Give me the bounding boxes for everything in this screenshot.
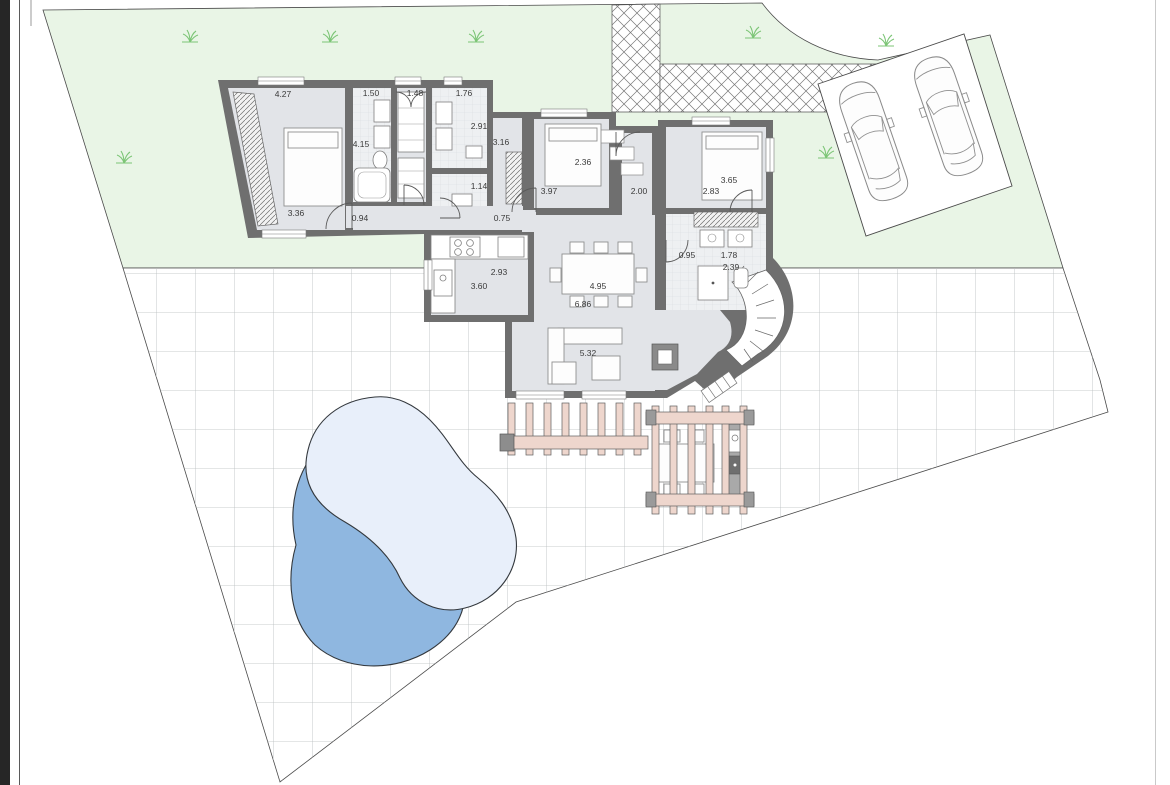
dimension-label: 1.48 <box>407 88 424 98</box>
hall-opening <box>522 210 536 232</box>
fireplace-icon <box>652 344 678 370</box>
bed-icon <box>545 124 601 186</box>
window-icon <box>692 117 730 125</box>
dimension-label: 4.27 <box>275 89 292 99</box>
dimension-label: 3.36 <box>288 208 305 218</box>
fridge-icon <box>498 237 524 257</box>
bed-icon <box>284 128 342 206</box>
dimension-label: 2.83 <box>703 186 720 196</box>
site-plan-drawing: 4.271.501.481.764.152.913.162.363.972.00… <box>0 0 1170 785</box>
dimension-label: 0.94 <box>352 213 369 223</box>
dimension-label: 2.91 <box>471 121 488 131</box>
dimension-label: 3.65 <box>721 175 738 185</box>
window-icon <box>766 138 774 172</box>
stove-icon <box>450 237 480 257</box>
window-icon <box>258 77 304 85</box>
dimension-label: 2.00 <box>631 186 648 196</box>
window-icon <box>541 109 587 117</box>
window-icon <box>516 391 564 399</box>
wardrobe <box>694 212 758 227</box>
dimension-label: 1.78 <box>721 250 738 260</box>
window-icon <box>582 391 626 399</box>
wardrobe <box>506 152 522 204</box>
dimension-label: 1.76 <box>456 88 473 98</box>
dimension-label: 1.14 <box>471 181 488 191</box>
dimension-label: 2.36 <box>575 157 592 167</box>
window-icon <box>424 260 432 290</box>
dimension-label: 0.75 <box>494 213 511 223</box>
dimension-label: 5.32 <box>580 348 597 358</box>
dimension-label: 3.97 <box>541 186 558 196</box>
sink-icon <box>434 270 452 296</box>
dimension-label: 1.50 <box>363 88 380 98</box>
pergola-right <box>646 406 754 514</box>
dimension-label: 6.86 <box>575 299 592 309</box>
plan-viewer-page: 4.271.501.481.764.152.913.162.363.972.00… <box>0 0 1170 785</box>
window-icon <box>395 77 421 85</box>
dimension-label: 2.93 <box>491 267 508 277</box>
closet-shelves <box>398 92 424 198</box>
dimension-label: 2.39 <box>723 262 740 272</box>
viewer-left-bar <box>0 0 10 785</box>
dimension-label: 3.16 <box>493 137 510 147</box>
dimension-label: 4.95 <box>590 281 607 291</box>
grass-icon <box>878 34 894 46</box>
dimension-label: 4.15 <box>353 139 370 149</box>
window-icon <box>262 230 306 238</box>
dimension-label: 0.95 <box>679 250 696 260</box>
room-entry-hall <box>622 133 652 218</box>
room-living-extension <box>512 322 534 391</box>
window-icon <box>444 77 462 85</box>
dimension-label: 3.60 <box>471 281 488 291</box>
